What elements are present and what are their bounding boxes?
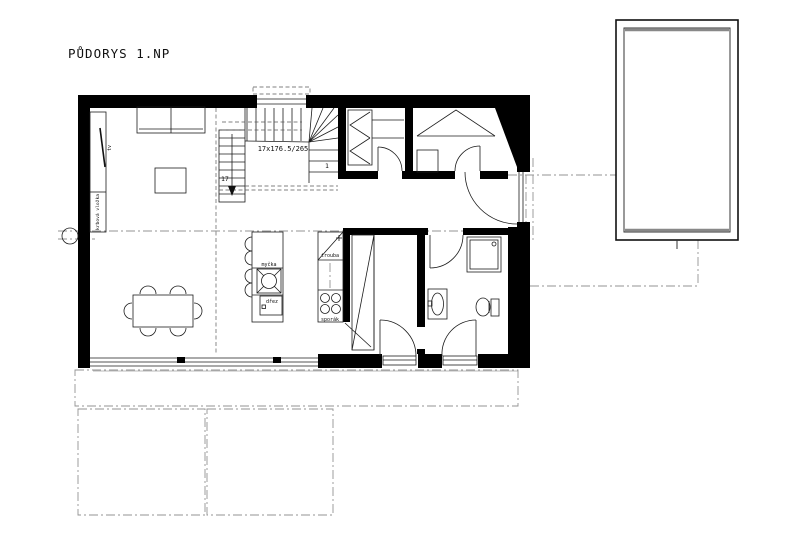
chair — [140, 328, 156, 336]
toilet — [476, 298, 499, 316]
kitchen-tall-unit: trouba sporák — [318, 232, 343, 323]
bathroom-terrace-door-swing — [442, 320, 476, 356]
sofa — [137, 107, 205, 133]
chair — [170, 286, 186, 294]
pool — [616, 20, 738, 249]
fireplace-label: krbová vložka — [94, 194, 101, 230]
chair — [124, 303, 132, 319]
bathroom — [428, 237, 501, 319]
entry-door-opening — [517, 167, 530, 227]
dining-table — [133, 295, 193, 327]
tv-unit: tv — [100, 128, 113, 167]
stair-dimension-label: 17x176.5/265 — [258, 145, 309, 153]
right-wall-upper — [495, 108, 530, 167]
left-wall — [78, 95, 90, 368]
wall-stairs-east — [338, 108, 346, 179]
stair-first-step-label: 1 — [325, 162, 329, 170]
chair — [140, 286, 156, 294]
entry-cabinet — [417, 150, 438, 172]
chair — [194, 303, 202, 319]
coffee-table — [155, 168, 186, 193]
right-wall-lower — [508, 227, 530, 368]
bottom-glazing — [90, 357, 318, 366]
terrace-door-frame-2 — [443, 356, 477, 365]
oven-label: trouba — [321, 253, 339, 259]
bathroom-door-swing — [430, 235, 463, 268]
bedroom-door-open-panel — [345, 323, 371, 347]
room-a-door-swing — [378, 147, 402, 171]
floor-plan-page: PŮDORYS 1.NP — [0, 0, 800, 533]
dishwasher — [257, 269, 281, 293]
dishwasher-label: myčka — [261, 261, 276, 268]
terrace-door-frame-1 — [383, 356, 416, 365]
cooktop — [321, 294, 341, 314]
chimney-symbol — [62, 228, 78, 244]
wall-bedroom-bathroom — [417, 235, 425, 327]
entry-door-swing — [465, 172, 517, 224]
wall-cabinet-strip: krbová vložka — [90, 112, 106, 232]
kitchen: myčka dřez trouba — [245, 232, 343, 323]
wardrobe-symbol — [417, 110, 495, 136]
floor-plan-drawing: 17x176.5/265 17 1 tv krbová vložka — [0, 0, 800, 533]
staircase: 17x176.5/265 17 1 — [219, 108, 338, 202]
room-b-door-swing — [455, 146, 480, 171]
bottom-wall-seg3 — [478, 354, 530, 368]
washbasin — [428, 289, 447, 319]
kitchen-island: myčka dřez — [252, 232, 283, 322]
pergola-bay-left — [78, 409, 205, 515]
wall-kitchen-bedroom — [343, 232, 350, 322]
pergola-bay-right — [207, 409, 333, 515]
bottom-wall-seg2 — [418, 354, 442, 368]
top-window — [253, 87, 310, 108]
dining-set — [124, 286, 202, 336]
shower — [467, 237, 501, 272]
chair — [170, 328, 186, 336]
bar-stools — [245, 237, 252, 297]
terrace-outline — [75, 370, 518, 515]
interior-walls — [338, 108, 508, 354]
bottom-wall-seg1 — [318, 354, 382, 368]
sink-label: dřez — [266, 298, 278, 305]
bedroom-terrace-door-swing — [380, 320, 416, 356]
wall-top-rooms-divider — [405, 108, 413, 171]
stove-label: sporák — [321, 316, 339, 323]
stair-last-step-label: 17 — [221, 175, 229, 183]
tv-label: tv — [107, 145, 113, 151]
storage-room — [348, 110, 404, 165]
bedroom — [352, 235, 374, 350]
